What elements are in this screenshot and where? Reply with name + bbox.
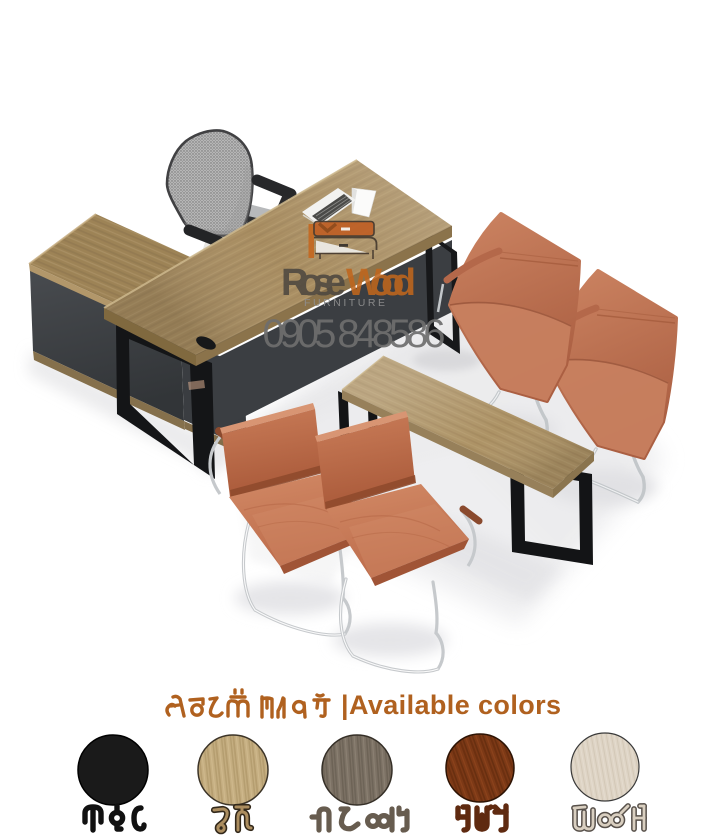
svg-text:0905 848586: 0905 848586 (263, 312, 446, 356)
svg-text:FURNITURE: FURNITURE (304, 297, 388, 309)
svg-text:|Available colors: |Available colors (341, 690, 561, 720)
